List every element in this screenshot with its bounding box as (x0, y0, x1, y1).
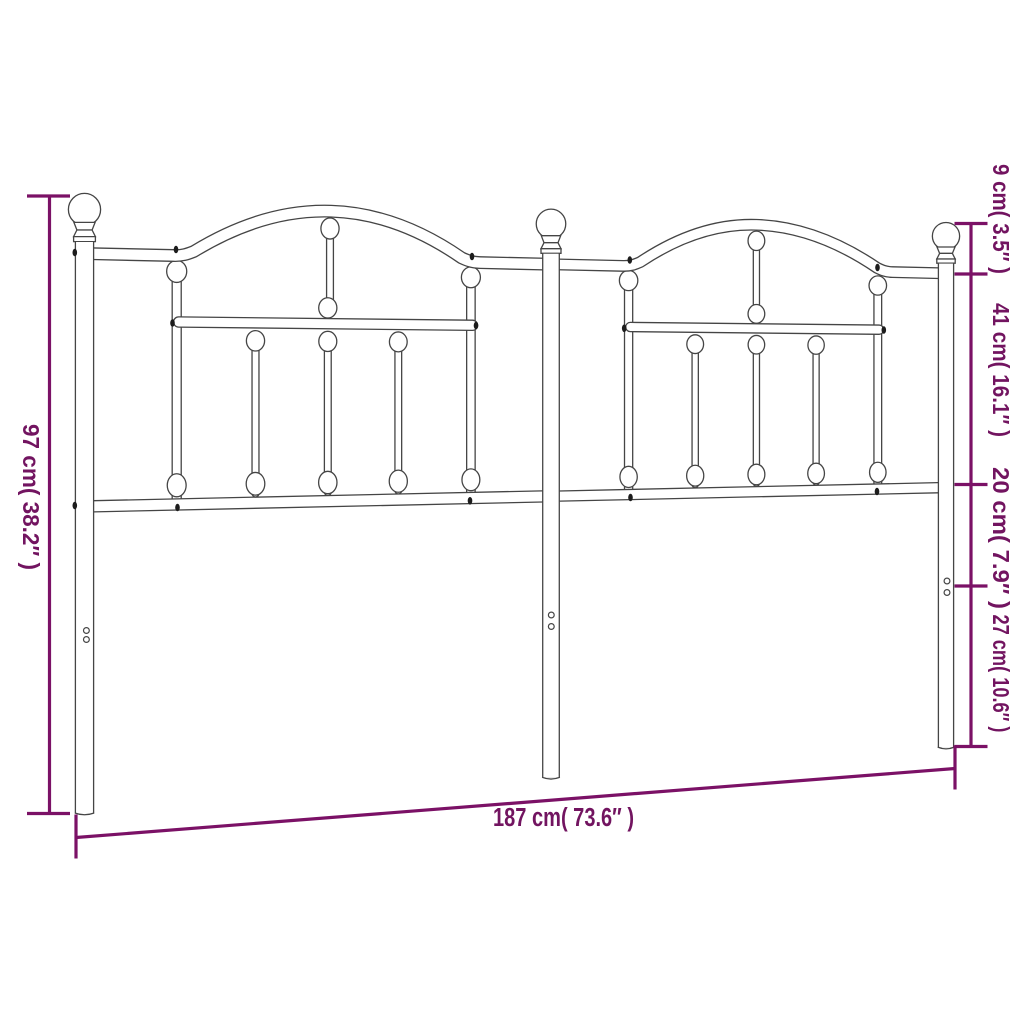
svg-text:27 cm( 10.6″ ): 27 cm( 10.6″ ) (988, 615, 1014, 733)
svg-text:41 cm( 16.1″ ): 41 cm( 16.1″ ) (988, 303, 1014, 437)
svg-text:20 cm( 7.9″ ): 20 cm( 7.9″ ) (988, 467, 1014, 609)
svg-text:97 cm( 38.2″ ): 97 cm( 38.2″ ) (18, 424, 44, 570)
svg-text:187 cm( 73.6″ ): 187 cm( 73.6″ ) (493, 804, 634, 832)
svg-text:9 cm( 3.5″ ): 9 cm( 3.5″ ) (988, 164, 1014, 274)
